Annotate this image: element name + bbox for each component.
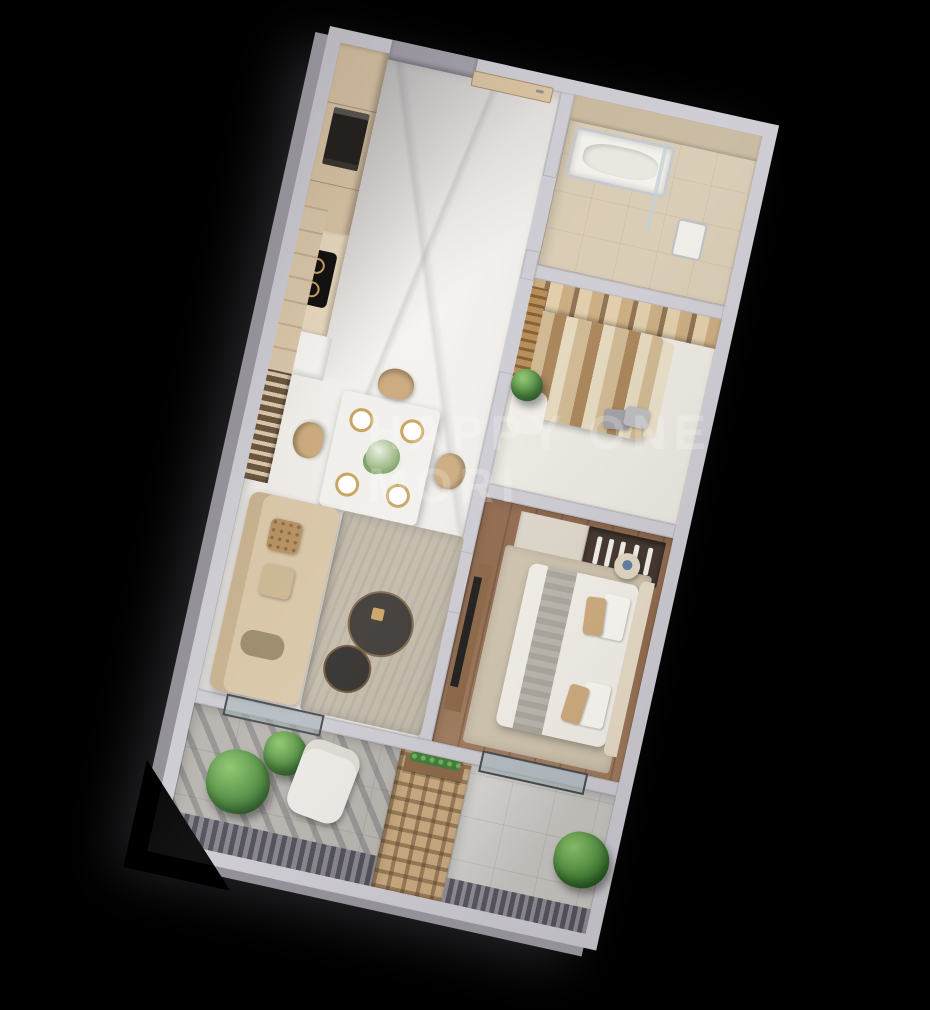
hanging-clothes-icon [604, 539, 615, 567]
door-handle-icon [536, 89, 544, 94]
hanging-clothes-icon [643, 547, 654, 575]
table-decor-icon [371, 607, 385, 621]
cushion [265, 517, 303, 555]
cushion [257, 563, 295, 601]
hanging-clothes-icon [592, 536, 603, 564]
apartment-render-scene: HAPPY ONE MORI [0, 0, 930, 1010]
decor-vase-icon [621, 559, 633, 571]
place-setting-icon [333, 470, 362, 499]
watermark: HAPPY ONE MORI [368, 408, 713, 514]
watermark-line2: MORI [368, 461, 713, 514]
watermark-line1: HAPPY ONE [368, 408, 713, 461]
